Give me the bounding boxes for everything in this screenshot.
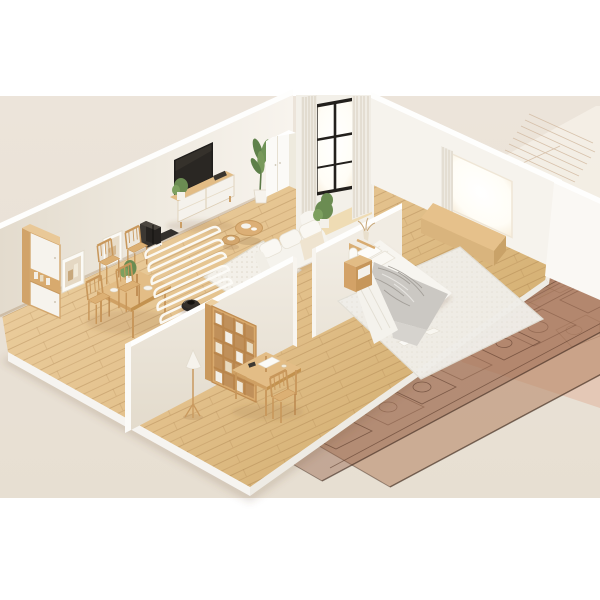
product-render: Isometric apartment cutaway with robot v…	[0, 0, 600, 600]
robot-lidar-turret	[187, 300, 195, 304]
coffee-table-small	[223, 235, 240, 250]
tall-cabinet	[22, 224, 60, 318]
apartment-scene: Isometric apartment cutaway with robot v…	[0, 0, 600, 600]
white-wardrobe	[266, 130, 296, 197]
door-jamb-right	[312, 247, 316, 338]
door-jamb-left	[293, 256, 297, 347]
bedroom-curtain	[441, 146, 453, 216]
balcony-curtain-right	[352, 96, 372, 220]
